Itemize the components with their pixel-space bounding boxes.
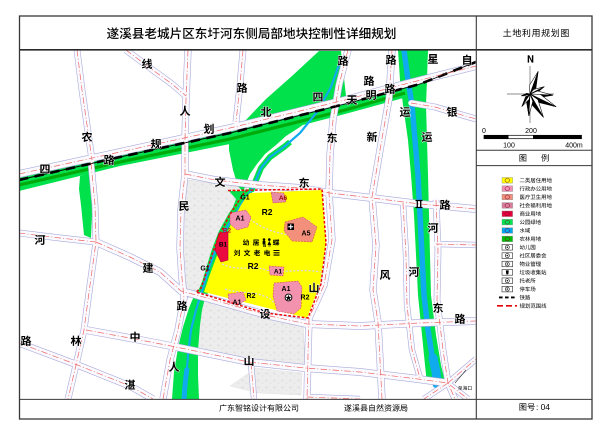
svg-text:B1: B1 (219, 241, 228, 248)
svg-text:100: 100 (503, 143, 515, 150)
svg-text:G1: G1 (200, 266, 209, 273)
svg-text:R2: R2 (223, 227, 232, 234)
svg-text:A1: A1 (236, 216, 245, 223)
svg-text:400m: 400m (565, 143, 583, 150)
svg-text:G1: G1 (240, 195, 249, 202)
svg-text:R2: R2 (262, 207, 273, 217)
svg-text:A1: A1 (274, 268, 283, 275)
svg-text:R2: R2 (301, 295, 310, 302)
svg-text:R2: R2 (247, 293, 256, 300)
svg-text:0: 0 (482, 128, 486, 135)
svg-text:A1: A1 (282, 286, 291, 293)
svg-text:200: 200 (525, 128, 537, 135)
svg-text:R2: R2 (248, 261, 259, 271)
svg-text:: 04: : 04 (536, 402, 550, 412)
svg-text:A1: A1 (233, 300, 242, 307)
svg-text:A6: A6 (279, 195, 288, 202)
svg-text:A5: A5 (302, 231, 311, 238)
